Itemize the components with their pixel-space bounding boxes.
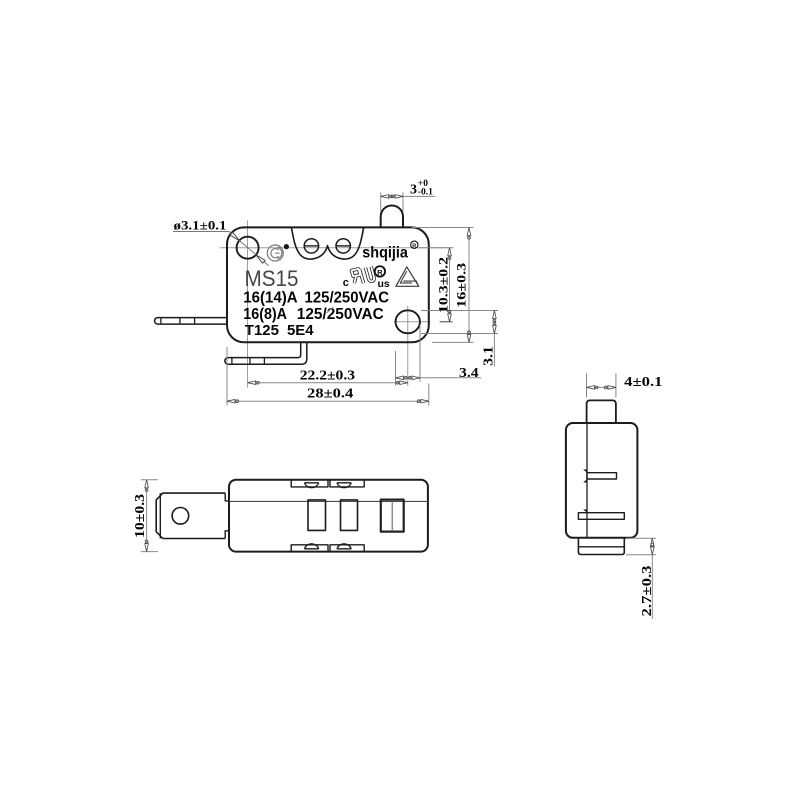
svg-text:4±0.1: 4±0.1 — [624, 374, 663, 389]
svg-text:3: 3 — [410, 182, 417, 197]
svg-text:16±0.3: 16±0.3 — [454, 263, 468, 308]
svg-text:ø3.1±0.1: ø3.1±0.1 — [174, 219, 227, 233]
svg-text:T125: T125 — [245, 323, 279, 339]
svg-text:10±0.3: 10±0.3 — [133, 494, 148, 538]
svg-text:2.7±0.3: 2.7±0.3 — [639, 565, 654, 616]
svg-text:R: R — [377, 268, 383, 277]
svg-text:MS15: MS15 — [245, 266, 299, 291]
svg-text:-0.1: -0.1 — [418, 188, 433, 198]
svg-text:R: R — [412, 243, 416, 249]
svg-text:125/250VAC: 125/250VAC — [305, 290, 390, 307]
svg-text:28±0.4: 28±0.4 — [307, 385, 354, 400]
svg-text:10.3±0.2: 10.3±0.2 — [436, 257, 450, 313]
svg-text:5E4: 5E4 — [287, 323, 314, 339]
svg-text:22.2±0.3: 22.2±0.3 — [300, 367, 356, 382]
svg-text:16(8)A: 16(8)A — [243, 306, 287, 323]
svg-text:us: us — [378, 278, 390, 290]
svg-text:16(14)A: 16(14)A — [243, 290, 298, 307]
svg-text:c: c — [343, 277, 349, 289]
svg-text:125/250VAC: 125/250VAC — [297, 306, 384, 323]
svg-text:shqijia: shqijia — [362, 245, 408, 262]
svg-text:3.1: 3.1 — [481, 346, 496, 366]
svg-text:3.4: 3.4 — [459, 365, 479, 380]
